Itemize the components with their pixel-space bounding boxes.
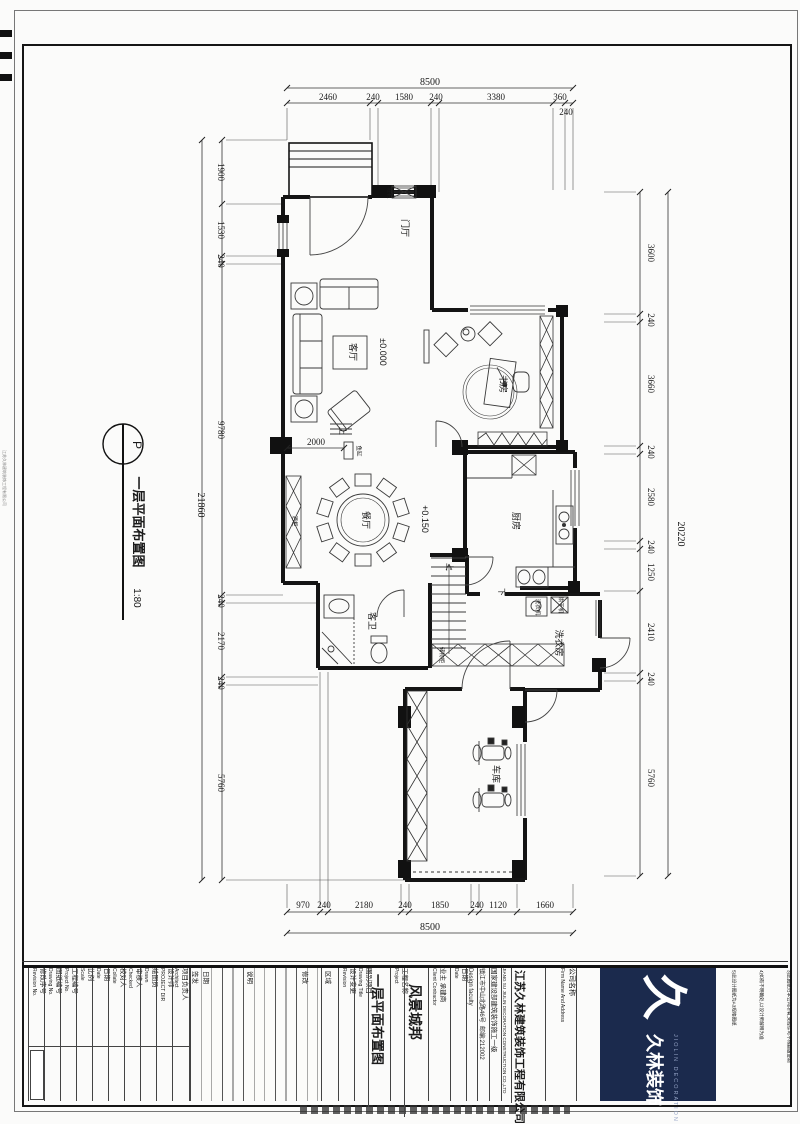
dim-label: 2410 bbox=[646, 623, 656, 642]
dim-label: 240 bbox=[216, 676, 226, 690]
dim-label: 8500 bbox=[420, 922, 440, 933]
label-fish-tank: 鱼缸 bbox=[355, 445, 363, 457]
note-item: 3)此图纸归本公司所有,未经许可不得翻版复制 bbox=[784, 970, 793, 1100]
notes-block: 备注 Notes 1)图纸尺寸、标高尺寸均以实际测量为准 2)所有尺寸必须经现场… bbox=[720, 970, 800, 1100]
project-value: 风景城邦 bbox=[404, 968, 425, 1117]
motorcycle-2 bbox=[473, 785, 511, 812]
logo-text-en: JIOLIN DECORATION bbox=[672, 1034, 678, 1123]
field-architect: 项目负责人Architect bbox=[172, 968, 190, 1101]
dim-label: 240 bbox=[470, 900, 484, 910]
level-dining: +0.150 bbox=[420, 505, 430, 533]
logo-text-zh: 久林装饰 bbox=[642, 1034, 668, 1106]
logo-glyph: 久 bbox=[634, 974, 700, 1020]
client-label: 业主 承建商Client Contractor bbox=[428, 968, 447, 1101]
dim-label: 240 bbox=[216, 594, 226, 608]
room-label-study: 书房 bbox=[498, 375, 509, 393]
rev-header-sign: 签发 bbox=[191, 971, 201, 984]
dim-label: 2000 bbox=[307, 437, 326, 447]
dim-label: 1530 bbox=[216, 221, 226, 240]
drawing-no-box bbox=[30, 1050, 44, 1100]
label-shoe-cabinet: 鞋柜 bbox=[386, 187, 394, 199]
dim-label: 3600 bbox=[646, 244, 656, 263]
study-closet bbox=[478, 432, 547, 446]
living-side-tables bbox=[291, 283, 317, 422]
note-item: 4)如有不明确处,以设计师解释为准 bbox=[757, 970, 766, 1100]
dim-label: 8500 bbox=[420, 77, 440, 88]
floor-plan-sheet: { "marker": {"code": "P", "title": "一层平面… bbox=[0, 0, 800, 1117]
interior-dim: 2000 bbox=[284, 437, 347, 451]
company-name-en: JIANG SU JIULIN DECORATION CONSTRUCTION … bbox=[501, 968, 507, 1101]
dim-label: 1900 bbox=[216, 163, 226, 182]
stairs bbox=[431, 558, 466, 654]
dim-labels-left: 21860 1900 1530 240 9780 240 2170 240 57… bbox=[195, 163, 226, 793]
dim-label: 240 bbox=[646, 313, 656, 327]
label-dryer: 烘干机 bbox=[557, 597, 565, 614]
motorcycle-1 bbox=[473, 738, 511, 765]
floor-plan-svg: 8500 2460 240 1580 240 3380 360 240 2186… bbox=[0, 0, 800, 1117]
living-sofa-three bbox=[293, 314, 322, 394]
dim-labels-right: 20220 3600 240 3660 240 2580 240 1250 24… bbox=[646, 244, 686, 788]
level-living: ±0.000 bbox=[378, 338, 388, 365]
company-logo: 久 久林装饰 JIOLIN DECORATION bbox=[600, 968, 716, 1101]
label-stairs-down: 下 bbox=[497, 588, 506, 596]
fish-tank bbox=[344, 442, 353, 459]
dim-label: 21860 bbox=[195, 493, 206, 518]
dim-label: 240 bbox=[646, 445, 656, 459]
rev-header-date: 日期 bbox=[202, 971, 212, 984]
design-faculty: Design faculty bbox=[466, 968, 473, 1101]
windows bbox=[279, 188, 600, 816]
drawing-title-marker: P 一层平面布置图 1:80 bbox=[103, 424, 146, 620]
marker-title: 一层平面布置图 bbox=[131, 476, 146, 567]
room-label-living: 客厅 bbox=[348, 343, 359, 361]
room-label-entry: 门厅 bbox=[400, 219, 411, 237]
dim-label: 3380 bbox=[487, 92, 506, 102]
company-name-zh: 江苏久林建筑装饰工程有限公司 bbox=[511, 968, 528, 1103]
drawing-title-value: 一层平面布置图 bbox=[368, 968, 388, 1107]
toilet bbox=[371, 636, 387, 663]
dim-label: 2580 bbox=[646, 488, 656, 507]
dim-label: 2180 bbox=[355, 900, 374, 910]
dim-label: 5760 bbox=[216, 774, 226, 793]
rev-header-zone: 区域 bbox=[324, 971, 334, 984]
dim-label: 240 bbox=[317, 900, 331, 910]
room-label-guest-bath: 客卫 bbox=[367, 612, 378, 630]
dim-label: 1660 bbox=[536, 900, 555, 910]
study-bookcase bbox=[540, 316, 553, 428]
label-wine-cabinet: 酒柜 bbox=[291, 515, 299, 527]
firm-label: 公司名称Firm Name And Address bbox=[545, 968, 577, 1101]
dim-label: 5760 bbox=[646, 769, 656, 788]
tv bbox=[424, 330, 429, 363]
label-step-up: 上 bbox=[338, 427, 347, 435]
company-address: 镇江市中山北路46号 邮编:212002 bbox=[477, 968, 487, 1101]
living-sofa-two bbox=[320, 279, 378, 309]
furniture bbox=[291, 279, 575, 812]
dim-label: 9780 bbox=[216, 421, 226, 440]
lounge-chair bbox=[327, 390, 371, 433]
room-label-garage: 车库 bbox=[491, 765, 502, 783]
walls bbox=[283, 192, 600, 880]
dim-label: 1580 bbox=[395, 92, 414, 102]
rev-header-mod: 修改 bbox=[301, 971, 311, 984]
field-divider bbox=[28, 1046, 190, 1047]
company-qualification: 国家建设部建筑装饰施工一级 bbox=[489, 968, 500, 1101]
dim-label: 360 bbox=[553, 92, 567, 102]
kitchen-fridge bbox=[512, 455, 536, 475]
marker-scale: 1:80 bbox=[131, 588, 142, 608]
dim-label: 240 bbox=[646, 672, 656, 686]
doors bbox=[310, 197, 630, 722]
rev-header-desc: 说明 bbox=[246, 971, 256, 984]
dim-label: 240 bbox=[366, 92, 380, 102]
dim-label: 240 bbox=[559, 107, 573, 117]
dim-label: 1120 bbox=[489, 900, 507, 910]
marker-code: P bbox=[130, 441, 144, 449]
kitchen-sink bbox=[516, 567, 548, 587]
dim-labels-top: 8500 2460 240 1580 240 3380 360 240 bbox=[319, 77, 573, 117]
dimension-ticks bbox=[199, 85, 671, 936]
dim-label: 240 bbox=[429, 92, 443, 102]
dim-label: 2170 bbox=[216, 632, 226, 651]
label-stairs-up: 上 bbox=[445, 563, 454, 571]
study-chairs bbox=[434, 322, 502, 357]
dimension-chains bbox=[202, 88, 668, 933]
dim-label: 3660 bbox=[646, 375, 656, 394]
revision-grid bbox=[190, 968, 322, 1101]
dim-label: 240 bbox=[216, 254, 226, 268]
dim-label: 20220 bbox=[675, 522, 686, 547]
dim-label: 1850 bbox=[431, 900, 450, 910]
dim-label: 240 bbox=[646, 540, 656, 554]
hall-storage-cabinet bbox=[432, 644, 564, 666]
dim-label: 240 bbox=[398, 900, 412, 910]
label-washer: 洗衣机 bbox=[534, 599, 542, 616]
dim-labels-bottom: 970 240 2180 240 1850 240 1120 1660 8500 bbox=[296, 900, 554, 933]
label-storage-cabinet: 储物柜 bbox=[438, 647, 446, 664]
room-label-laundry: 洗衣房 bbox=[554, 629, 565, 656]
dim-label: 1250 bbox=[646, 563, 656, 582]
dim-label: 970 bbox=[296, 900, 310, 910]
bath-basin bbox=[324, 595, 354, 618]
porch-steps bbox=[289, 143, 372, 197]
note-item: 5)此设计图纸为A3规格图纸 bbox=[729, 970, 738, 1100]
room-label-kitchen: 厨房 bbox=[511, 512, 522, 530]
dim-label: 2460 bbox=[319, 92, 338, 102]
room-label-dining: 餐厅 bbox=[361, 511, 372, 529]
shower bbox=[322, 618, 354, 664]
